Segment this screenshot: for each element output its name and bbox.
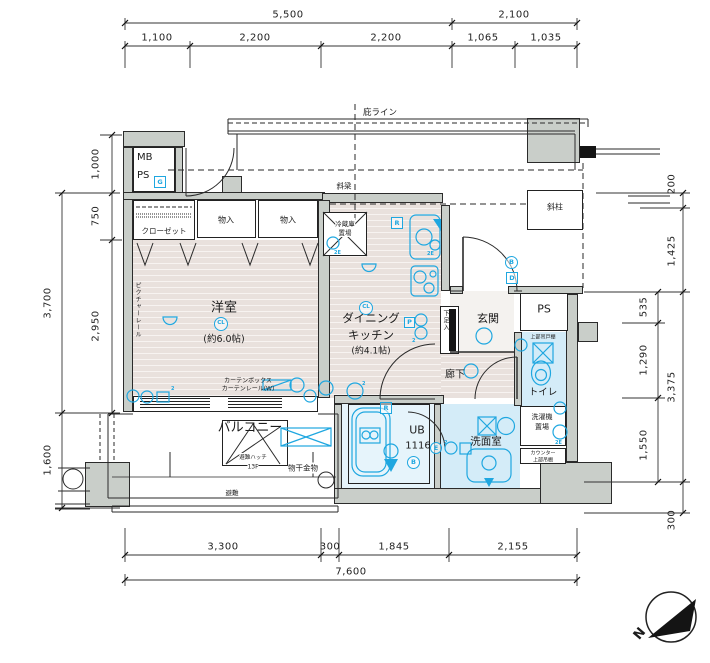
label-evacuation: 避難 (226, 487, 239, 497)
label-washroom: 洗面室 (470, 434, 502, 449)
compass-icon (646, 592, 696, 642)
label-pipe-space-2: PS (537, 303, 551, 316)
dim-right-1550: 1,550 (639, 429, 650, 460)
dim-bottom-300: 300 (320, 542, 341, 553)
dim-right-300: 300 (667, 510, 678, 531)
outlet-count-label: 2 (171, 386, 174, 392)
dim-bottom-3300: 3,300 (207, 542, 238, 553)
outlet-2e-label: 2E (334, 250, 341, 256)
label-meter-box: MB (137, 152, 153, 163)
label-dk-size: (約4.1帖) (351, 344, 390, 357)
dim-left-1000: 1,000 (91, 148, 102, 179)
dim-top-2200b: 2,200 (370, 33, 401, 44)
dim-bottom-2155: 2,155 (497, 542, 528, 553)
label-curtain-rail: カーテンレール(W) (222, 384, 275, 393)
outlet-2e-label: 2E (427, 251, 434, 257)
label-washer-1: 洗濯機 (532, 412, 553, 422)
dim-top-1035: 1,035 (530, 33, 561, 44)
dim-left-1600: 1,600 (43, 444, 54, 475)
outlet-2e-label: 2E (555, 440, 562, 446)
label-dk-2: キッチン (348, 327, 394, 343)
exhaust-icon: E (430, 442, 442, 454)
label-western-room-size: (約6.0帖) (203, 331, 245, 345)
dim-right-1290: 1,290 (639, 344, 650, 375)
floor-plan: 5,500 2,100 1,100 2,200 2,200 1,065 1,03… (0, 0, 710, 663)
dim-top-2100: 2,100 (498, 10, 529, 21)
label-diagonal-beam: 斜梁 (337, 181, 352, 192)
range-hood-icon: R (380, 402, 392, 414)
doorbell-icon: D (506, 272, 518, 284)
outlet-count-label: 2 (412, 338, 415, 344)
label-escape-hatch: 避難ハッチ (239, 453, 267, 461)
label-diagonal-pillar: 斜柱 (547, 202, 563, 213)
dim-right-535: 535 (639, 297, 650, 318)
dim-top-5500: 5,500 (272, 10, 303, 21)
ceiling-light-icon: CL (359, 301, 373, 315)
label-toilet: トイレ (529, 384, 558, 398)
outlet-count-label: 2 (444, 440, 447, 446)
label-counter-2: 上部吊棚 (533, 457, 553, 464)
label-western-room: 洋室 (211, 297, 237, 316)
label-laundry-hardware: 物干金物 (288, 463, 318, 474)
label-escape-hatch-floor: 13F (247, 464, 258, 471)
label-unit-bath: UB (409, 424, 425, 437)
dim-right-3375: 3,375 (667, 371, 678, 402)
label-picture-rail: ピクチャーレール (133, 282, 142, 364)
gas-meter-icon: G (154, 176, 166, 188)
power-panel-icon: P (404, 317, 415, 328)
range-hood-icon: R (391, 217, 403, 229)
label-balcony: バルコニー (218, 417, 283, 436)
dim-top-1065: 1,065 (467, 33, 498, 44)
dim-top-1100: 1,100 (141, 33, 172, 44)
dim-bottom-7600: 7,600 (335, 567, 366, 578)
label-storage-2: 物入 (280, 215, 296, 226)
label-toilet-shelf: 上部吊戸棚 (530, 334, 555, 341)
dim-left-2950: 2,950 (91, 310, 102, 341)
dim-left-3700: 3,700 (43, 287, 54, 318)
label-unit-bath-size: 1116 (405, 441, 430, 452)
dim-right-1425: 1,425 (667, 235, 678, 266)
label-pipe-space-1: PS (137, 170, 149, 181)
label-storage-1: 物入 (218, 215, 234, 226)
label-closet: クローゼット (142, 226, 187, 237)
dim-top-2200a: 2,200 (239, 33, 270, 44)
label-fridge-2: 置場 (339, 227, 352, 237)
dimension-ticks (59, 20, 686, 583)
label-eave-line: 庇ライン (363, 106, 397, 118)
label-hallway: 廊下 (445, 366, 465, 381)
bath-vent-icon: B (407, 456, 420, 469)
dim-bottom-1845: 1,845 (378, 542, 409, 553)
label-counter-1: カウンター (530, 450, 555, 457)
dim-left-750: 750 (91, 206, 102, 227)
dimension-lines (55, 18, 690, 586)
outlet-count-label: 2 (362, 381, 365, 387)
label-shoe-cabinet: 下足入 (441, 310, 450, 331)
label-washer-2: 置場 (535, 422, 549, 432)
label-entrance: 玄関 (477, 310, 499, 326)
dim-right-200: 200 (667, 174, 678, 195)
bath-vent-icon: B (505, 256, 518, 269)
ceiling-light-icon: CL (214, 317, 228, 331)
